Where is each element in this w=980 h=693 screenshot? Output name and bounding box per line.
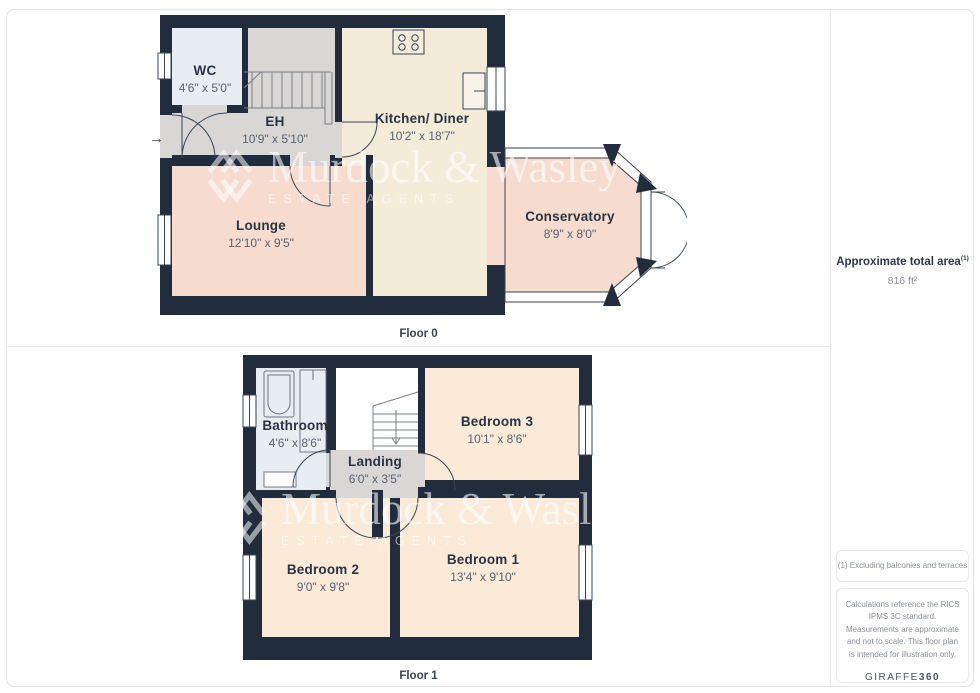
conservatory-structure bbox=[505, 144, 687, 306]
sink-icon bbox=[463, 73, 485, 109]
floor0-label: Floor 0 bbox=[7, 328, 830, 340]
brand-suffix: 360 bbox=[919, 672, 940, 683]
footnote-card: (1) Excluding balconies and terraces bbox=[836, 550, 969, 582]
basin-icon bbox=[264, 472, 296, 487]
brand-logo: GIRAFFE360 bbox=[844, 670, 961, 686]
total-area-title: Approximate total area(1) bbox=[831, 255, 974, 268]
floor1-label: Floor 1 bbox=[7, 670, 830, 682]
total-area-note-ref: (1) bbox=[961, 255, 969, 262]
disclaimer-text: Calculations reference the RICS IPMS 3C … bbox=[844, 599, 961, 661]
bedroom2-door-gap bbox=[336, 490, 372, 498]
bedroom3-door-gap bbox=[418, 453, 425, 487]
entry-arrow-icon: → bbox=[149, 132, 164, 146]
eh-floor-lower bbox=[172, 113, 248, 155]
wc-door-gap bbox=[182, 105, 227, 113]
bathroom-door-gap bbox=[326, 453, 330, 487]
floor1-plan-drawing bbox=[240, 350, 600, 668]
total-area-title-text: Approximate total area bbox=[836, 256, 961, 268]
bedroom2-floor bbox=[262, 498, 390, 637]
landing-wall-stub bbox=[372, 490, 383, 537]
conservatory-opening bbox=[487, 167, 505, 265]
lounge-kitchen-wall bbox=[366, 155, 373, 296]
floor1-panel: Murdock & Wasley ESTATE AGENTS Bathroom … bbox=[7, 347, 830, 686]
floorplan-page: → Murdock & Wasley ESTATE AGENTS WC 4'6 bbox=[0, 0, 980, 693]
floor0-panel: → Murdock & Wasley ESTATE AGENTS WC 4'6 bbox=[7, 10, 830, 347]
conservatory-doors bbox=[651, 192, 687, 268]
total-area-block: Approximate total area(1) 816 ft² bbox=[831, 255, 974, 287]
bedroom1-door-gap bbox=[383, 490, 418, 498]
info-sidebar: Approximate total area(1) 816 ft² (1) Ex… bbox=[830, 10, 974, 686]
landing-floor bbox=[330, 450, 418, 490]
footnote-text: (1) Excluding balconies and terraces bbox=[838, 560, 967, 572]
lounge-door-gap bbox=[290, 155, 330, 166]
floorplan-frame: → Murdock & Wasley ESTATE AGENTS WC 4'6 bbox=[6, 9, 974, 687]
conservatory-floor bbox=[505, 158, 641, 292]
brand-name: GIRAFFE bbox=[865, 672, 919, 683]
disclaimer-card: Calculations reference the RICS IPMS 3C … bbox=[836, 588, 969, 683]
floorplan-main-area: → Murdock & Wasley ESTATE AGENTS WC 4'6 bbox=[7, 10, 830, 686]
floor0-plan-drawing bbox=[157, 10, 687, 326]
kitchen-door-gap bbox=[335, 122, 342, 158]
lounge-floor bbox=[172, 166, 366, 296]
bedroom1-floor bbox=[400, 498, 579, 637]
bedroom3-floor bbox=[425, 368, 579, 480]
wc-floor bbox=[172, 28, 242, 105]
total-area-value: 816 ft² bbox=[831, 275, 974, 287]
